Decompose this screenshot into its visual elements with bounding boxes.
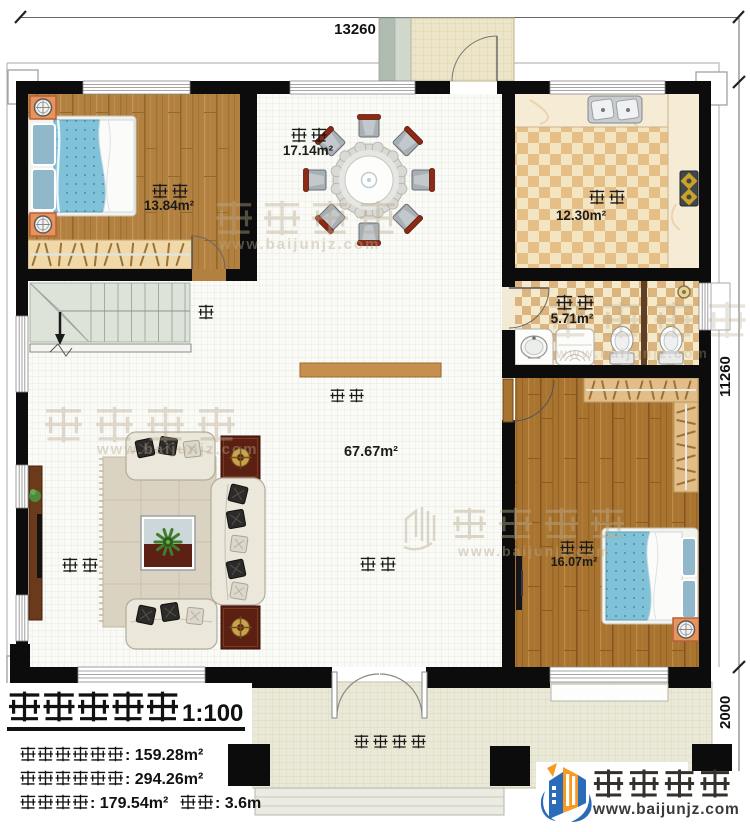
svg-text:13260: 13260	[334, 21, 376, 38]
svg-text:: 159.28m²: : 159.28m²	[125, 747, 203, 764]
svg-text:67.67m²: 67.67m²	[344, 444, 398, 460]
svg-text:www.baijunjz.com: www.baijunjz.com	[96, 441, 258, 458]
svg-text:1:100: 1:100	[182, 700, 243, 727]
svg-text:16.07m²: 16.07m²	[551, 555, 598, 569]
svg-text:www.baijunjz.com: www.baijunjz.com	[218, 236, 380, 253]
svg-text:www.baijunjz.com: www.baijunjz.com	[592, 801, 740, 818]
svg-text:5.71m²: 5.71m²	[551, 311, 594, 326]
svg-text:12.30m²: 12.30m²	[556, 208, 607, 223]
svg-text:13.84m²: 13.84m²	[144, 198, 195, 213]
svg-text:11260: 11260	[717, 356, 734, 397]
svg-text:17.14m²: 17.14m²	[283, 143, 334, 158]
svg-text:2000: 2000	[717, 696, 734, 729]
svg-text:: 294.26m²: : 294.26m²	[125, 771, 203, 788]
svg-text:: 179.54m²: : 179.54m²	[90, 795, 168, 812]
svg-text:www.baijunjz.com: www.baijunjz.com	[555, 345, 709, 361]
svg-text:: 3.6m: : 3.6m	[215, 795, 261, 812]
